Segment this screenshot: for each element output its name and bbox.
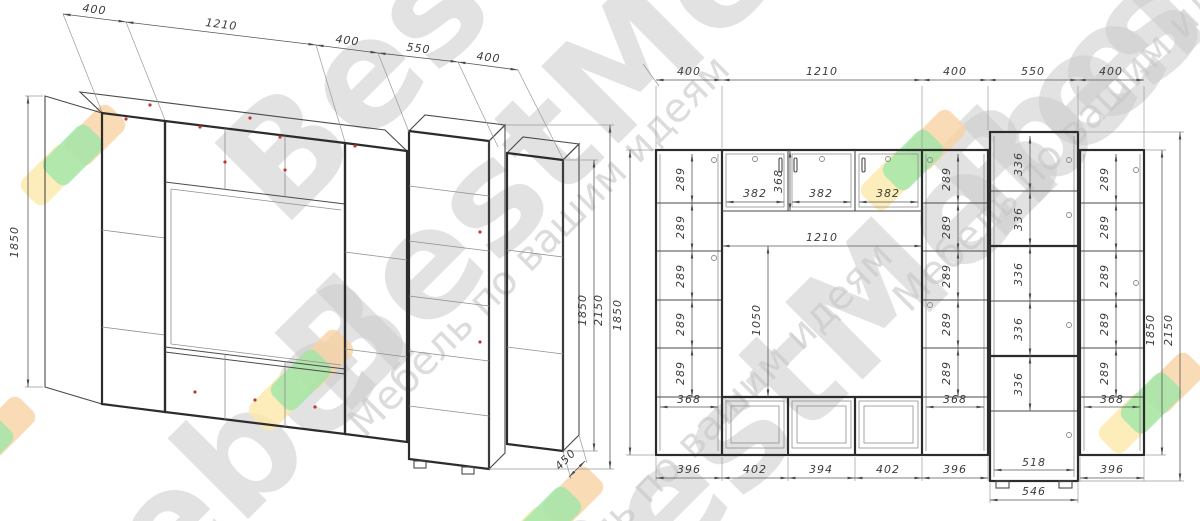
dim-label: 1850 xyxy=(576,294,589,326)
furniture-blueprint: BestMebel BestMebel BestMebel BestMebel … xyxy=(0,0,1200,521)
elevation-view: 400 1210 400 550 400 1850 289 289 289 28… xyxy=(611,64,1184,503)
dim-label: 396 xyxy=(677,463,701,476)
dim-label: 336 xyxy=(1012,262,1025,286)
dim-label: 289 xyxy=(940,215,953,239)
dim-label: 289 xyxy=(940,312,953,336)
dim-label: 550 xyxy=(1021,65,1045,78)
dim-label: 400 xyxy=(82,2,107,18)
dim-label: 289 xyxy=(1098,264,1111,288)
technical-drawing: 400 1210 400 550 400 1850 1850 2150 450 xyxy=(0,0,1200,521)
dim-label: 382 xyxy=(809,187,833,200)
dim-label: 550 xyxy=(406,41,431,57)
dim-label: 289 xyxy=(674,264,687,288)
dim-label: 1210 xyxy=(806,231,838,244)
dim-label: 1850 xyxy=(8,226,21,258)
dim-label: 336 xyxy=(1012,372,1025,396)
dim-label: 289 xyxy=(1098,312,1111,336)
dim-label: 2150 xyxy=(592,294,605,326)
dim-label: 396 xyxy=(1100,463,1124,476)
dim-label: 394 xyxy=(809,463,833,476)
dim-label: 368 xyxy=(772,169,785,193)
dim-label: 289 xyxy=(940,167,953,191)
dim-label: 400 xyxy=(943,65,967,78)
dim-label: 402 xyxy=(876,463,900,476)
iso-view: 400 1210 400 550 400 1850 1850 2150 450 xyxy=(8,2,614,479)
dim-label: 1210 xyxy=(806,65,838,78)
dim-label: 2150 xyxy=(1162,314,1175,346)
dim-label: 402 xyxy=(743,463,767,476)
dim-label: 368 xyxy=(943,393,967,406)
dim-label: 289 xyxy=(674,215,687,239)
dim-label: 289 xyxy=(1098,361,1111,385)
dim-label: 289 xyxy=(1098,215,1111,239)
dim-label: 546 xyxy=(1022,485,1046,498)
dim-label: 336 xyxy=(1012,152,1025,176)
dim-label: 368 xyxy=(677,393,701,406)
dim-label: 1850 xyxy=(611,299,624,331)
dim-label: 289 xyxy=(940,264,953,288)
dim-label: 336 xyxy=(1012,207,1025,231)
dim-label: 400 xyxy=(677,65,701,78)
dim-label: 336 xyxy=(1012,317,1025,341)
dim-label: 396 xyxy=(943,463,967,476)
dim-label: 382 xyxy=(743,187,767,200)
dim-label: 289 xyxy=(674,361,687,385)
dim-label: 1850 xyxy=(1144,314,1157,346)
dim-label: 400 xyxy=(1099,65,1123,78)
dim-label: 518 xyxy=(1022,456,1046,469)
dim-label: 289 xyxy=(940,361,953,385)
dim-label: 382 xyxy=(876,187,900,200)
dim-label: 289 xyxy=(1098,167,1111,191)
dim-label: 368 xyxy=(1100,393,1124,406)
dim-label: 400 xyxy=(335,33,360,49)
dim-label: 1050 xyxy=(750,304,763,336)
dim-label: 400 xyxy=(476,50,501,66)
dim-label: 289 xyxy=(674,312,687,336)
dim-label: 289 xyxy=(674,167,687,191)
dim-label: 1210 xyxy=(205,16,238,33)
